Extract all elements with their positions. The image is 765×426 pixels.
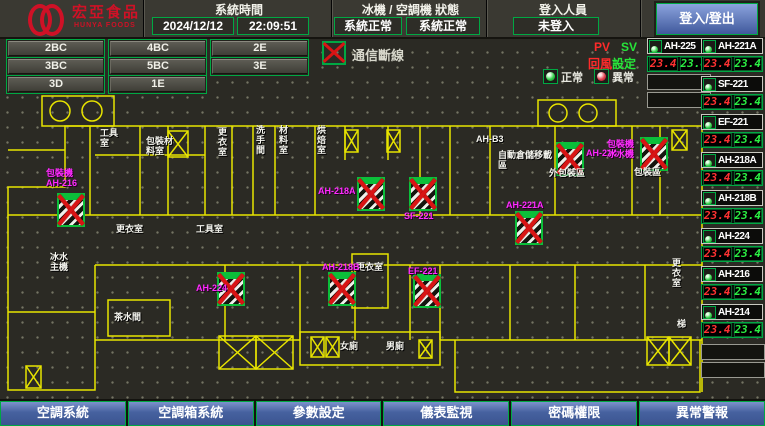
sv-value: 23.4 xyxy=(734,171,763,185)
room-label: 外包裝區 xyxy=(549,168,585,178)
pv-value: 23.4 xyxy=(703,247,732,261)
room-label: 更衣室 xyxy=(116,224,143,234)
ahu-offline-icon[interactable] xyxy=(515,211,543,245)
room-label: AH-B3 xyxy=(476,134,504,144)
sv-value: 23.4 xyxy=(734,57,763,71)
unit-card-ah218b[interactable]: AH-218B 23.423.4 xyxy=(701,190,763,224)
status-lamp-icon xyxy=(703,192,716,205)
room-label: 洗手間 xyxy=(255,125,265,155)
ahu-status: 系統正常 xyxy=(406,17,480,35)
status-lamp-icon xyxy=(703,230,716,243)
empty-unit-slot xyxy=(701,362,765,378)
status-lamp-icon xyxy=(649,40,662,53)
plan-unit-label: EF-221 xyxy=(408,266,438,276)
floor-button-4bc[interactable]: 4BC xyxy=(110,41,205,56)
tab-meter-monitoring[interactable]: 儀表監視 xyxy=(383,401,509,426)
chiller-status: 系統正常 xyxy=(334,17,402,35)
room-label: 更衣室 xyxy=(671,258,681,288)
stairwell-outline xyxy=(42,96,114,126)
room-label: 工具室 xyxy=(100,128,122,148)
room-label: 更衣室 xyxy=(217,127,227,157)
room-label: 包裝區 xyxy=(634,167,661,177)
pv-value: 23.4 xyxy=(703,323,732,337)
unit-card-ah218a[interactable]: AH-218A 23.423.4 xyxy=(701,152,763,186)
room-label: 更衣室 xyxy=(356,262,383,272)
ahu-offline-icon[interactable] xyxy=(57,193,85,227)
sv-value: 23.4 xyxy=(734,95,763,109)
system-date: 2024/12/12 xyxy=(152,17,234,35)
sv-value: 23.4 xyxy=(734,133,763,147)
plan-unit-label: AH-218B xyxy=(322,262,360,272)
ahu-offline-icon[interactable] xyxy=(328,272,356,306)
plan-unit-label: AH-218A xyxy=(318,186,356,196)
system-time-label: 系統時間 xyxy=(145,1,333,18)
sv-value: 23.4 xyxy=(734,247,763,261)
unit-card-ah224[interactable]: AH-224 23.423.4 xyxy=(701,228,763,262)
unit-card-ah225[interactable]: AH-225 23.423.4 xyxy=(647,38,709,72)
pv-value: 23.4 xyxy=(703,171,732,185)
ahu-offline-icon[interactable] xyxy=(357,177,385,211)
tab-alarm[interactable]: 異常警報 xyxy=(639,401,765,426)
room-label: 茶水間 xyxy=(114,312,141,322)
room-label: 冰水 主機 xyxy=(50,252,68,272)
tab-parameter-settings[interactable]: 參數設定 xyxy=(256,401,382,426)
floor-button-2e[interactable]: 2E xyxy=(212,41,307,56)
floor-button-3e[interactable]: 3E xyxy=(212,59,307,74)
pv-value: 23.4 xyxy=(649,57,678,71)
machine-status-label: 冰機 / 空調機 狀態 xyxy=(333,1,488,18)
status-lamp-icon xyxy=(703,306,716,319)
sv-header: SV xyxy=(621,40,637,54)
unit-card-sf221[interactable]: SF-221 23.423.4 xyxy=(701,76,763,110)
plan-unit-label: SF-221 xyxy=(404,211,434,221)
tab-ahu-system[interactable]: 空調箱系統 xyxy=(128,401,254,426)
floor-button-2bc[interactable]: 2BC xyxy=(8,41,103,56)
plan-unit-label: AH-221A xyxy=(506,200,544,210)
floor-button-5bc[interactable]: 5BC xyxy=(110,59,205,74)
floor-button-3d[interactable]: 3D xyxy=(8,77,103,92)
sv-value: 23.4 xyxy=(734,209,763,223)
status-lamp-icon xyxy=(703,116,716,129)
ahu-offline-icon[interactable] xyxy=(640,137,668,171)
plan-unit-label: 包裝機 AH-216 xyxy=(46,168,77,188)
plan-unit-label: AH-224 xyxy=(196,283,227,293)
status-lamp-icon xyxy=(703,154,716,167)
login-label: 登入人員 xyxy=(488,1,638,18)
room-label: 材料室 xyxy=(278,125,288,155)
hmi-screen: 宏亞食品 HUNYA FOODS 系統時間 2024/12/12 22:09:5… xyxy=(0,0,765,426)
comm-offline-icon xyxy=(322,41,346,65)
company-name: 宏亞食品 xyxy=(72,5,140,20)
room-label: 男廁 xyxy=(386,341,404,351)
header-bar: 宏亞食品 HUNYA FOODS 系統時間 2024/12/12 22:09:5… xyxy=(0,0,765,39)
tab-password-authority[interactable]: 密碼權限 xyxy=(511,401,637,426)
pv-header: PV xyxy=(594,40,610,54)
ahu-offline-icon[interactable] xyxy=(409,177,437,211)
stairs-x-icons xyxy=(26,130,691,388)
pv-value: 23.4 xyxy=(703,209,732,223)
pv-value: 23.4 xyxy=(703,57,732,71)
unit-name: AH-225 xyxy=(664,41,695,52)
pv-value: 23.4 xyxy=(703,133,732,147)
room-label: 包裝材料室 xyxy=(146,136,180,156)
room-label: 工具室 xyxy=(196,224,223,234)
normal-lamp-icon xyxy=(543,69,558,84)
pv-value: 23.4 xyxy=(703,95,732,109)
floor-button-1e[interactable]: 1E xyxy=(110,77,205,92)
sv-value: 23.4 xyxy=(734,285,763,299)
status-lamp-icon xyxy=(703,268,716,281)
comm-offline-label: 通信斷線 xyxy=(352,45,404,64)
system-clock: 22:09:51 xyxy=(237,17,309,35)
login-user: 未登入 xyxy=(513,17,599,35)
sv-value: 23.4 xyxy=(734,323,763,337)
room-label: 女廁 xyxy=(340,341,358,351)
status-lamp-icon xyxy=(703,40,716,53)
empty-unit-slot xyxy=(701,344,765,360)
pv-name-header: 回風 xyxy=(588,55,612,72)
unit-card-ah216[interactable]: AH-216 23.423.4 xyxy=(701,266,763,300)
unit-card-ah221a[interactable]: AH-221A 23.423.4 xyxy=(701,38,763,72)
company-name-en: HUNYA FOODS xyxy=(74,22,136,29)
sv-name-header: 設定 xyxy=(612,55,636,72)
tab-hvac-system[interactable]: 空調系統 xyxy=(0,401,126,426)
floor-button-3bc[interactable]: 3BC xyxy=(8,59,103,74)
unit-card-ah214[interactable]: AH-214 23.423.4 xyxy=(701,304,763,338)
room-label: 梯 xyxy=(677,319,686,329)
plan-unit-label: 包裝機 冰水機 xyxy=(607,139,634,159)
pv-value: 23.4 xyxy=(703,285,732,299)
unit-card-ef221[interactable]: EF-221 23.423.4 xyxy=(701,114,763,148)
legend-normal: 正常 xyxy=(543,68,583,86)
bottom-nav: 空調系統 空調箱系統 參數設定 儀表監視 密碼權限 異常警報 xyxy=(0,399,765,426)
company-logo-icon xyxy=(28,4,58,32)
login-logout-button[interactable]: 登入/登出 xyxy=(656,3,758,35)
ahu-offline-icon[interactable] xyxy=(413,274,441,308)
room-label: 烘焙室 xyxy=(316,125,326,155)
room-label: 自動倉儲移載區 xyxy=(498,150,558,170)
status-lamp-icon xyxy=(703,78,716,91)
